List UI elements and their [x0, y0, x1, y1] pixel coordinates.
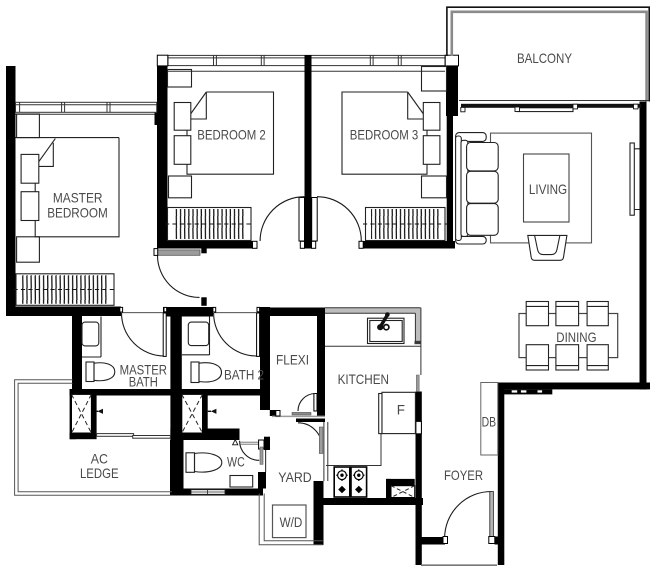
svg-text:YARD: YARD — [278, 470, 312, 485]
svg-text:BEDROOM 2: BEDROOM 2 — [197, 127, 266, 142]
svg-text:BEDROOM: BEDROOM — [47, 206, 108, 221]
svg-text:BATH 2: BATH 2 — [224, 367, 264, 382]
svg-text:DINING: DINING — [556, 330, 596, 345]
svg-text:F: F — [397, 402, 405, 417]
svg-text:FOYER: FOYER — [444, 468, 483, 483]
svg-text:BEDROOM 3: BEDROOM 3 — [350, 128, 419, 143]
svg-text:MASTER: MASTER — [53, 191, 103, 206]
svg-text:W/D: W/D — [280, 515, 303, 530]
svg-text:WC: WC — [227, 455, 245, 470]
svg-text:DB: DB — [482, 414, 497, 429]
svg-text:BATH: BATH — [129, 374, 158, 389]
svg-text:BALCONY: BALCONY — [517, 51, 572, 66]
svg-text:KITCHEN: KITCHEN — [338, 372, 389, 387]
svg-text:LEDGE: LEDGE — [80, 466, 119, 481]
svg-text:AC: AC — [91, 452, 108, 467]
svg-text:FLEXI: FLEXI — [276, 352, 309, 367]
svg-text:LIVING: LIVING — [529, 182, 567, 197]
